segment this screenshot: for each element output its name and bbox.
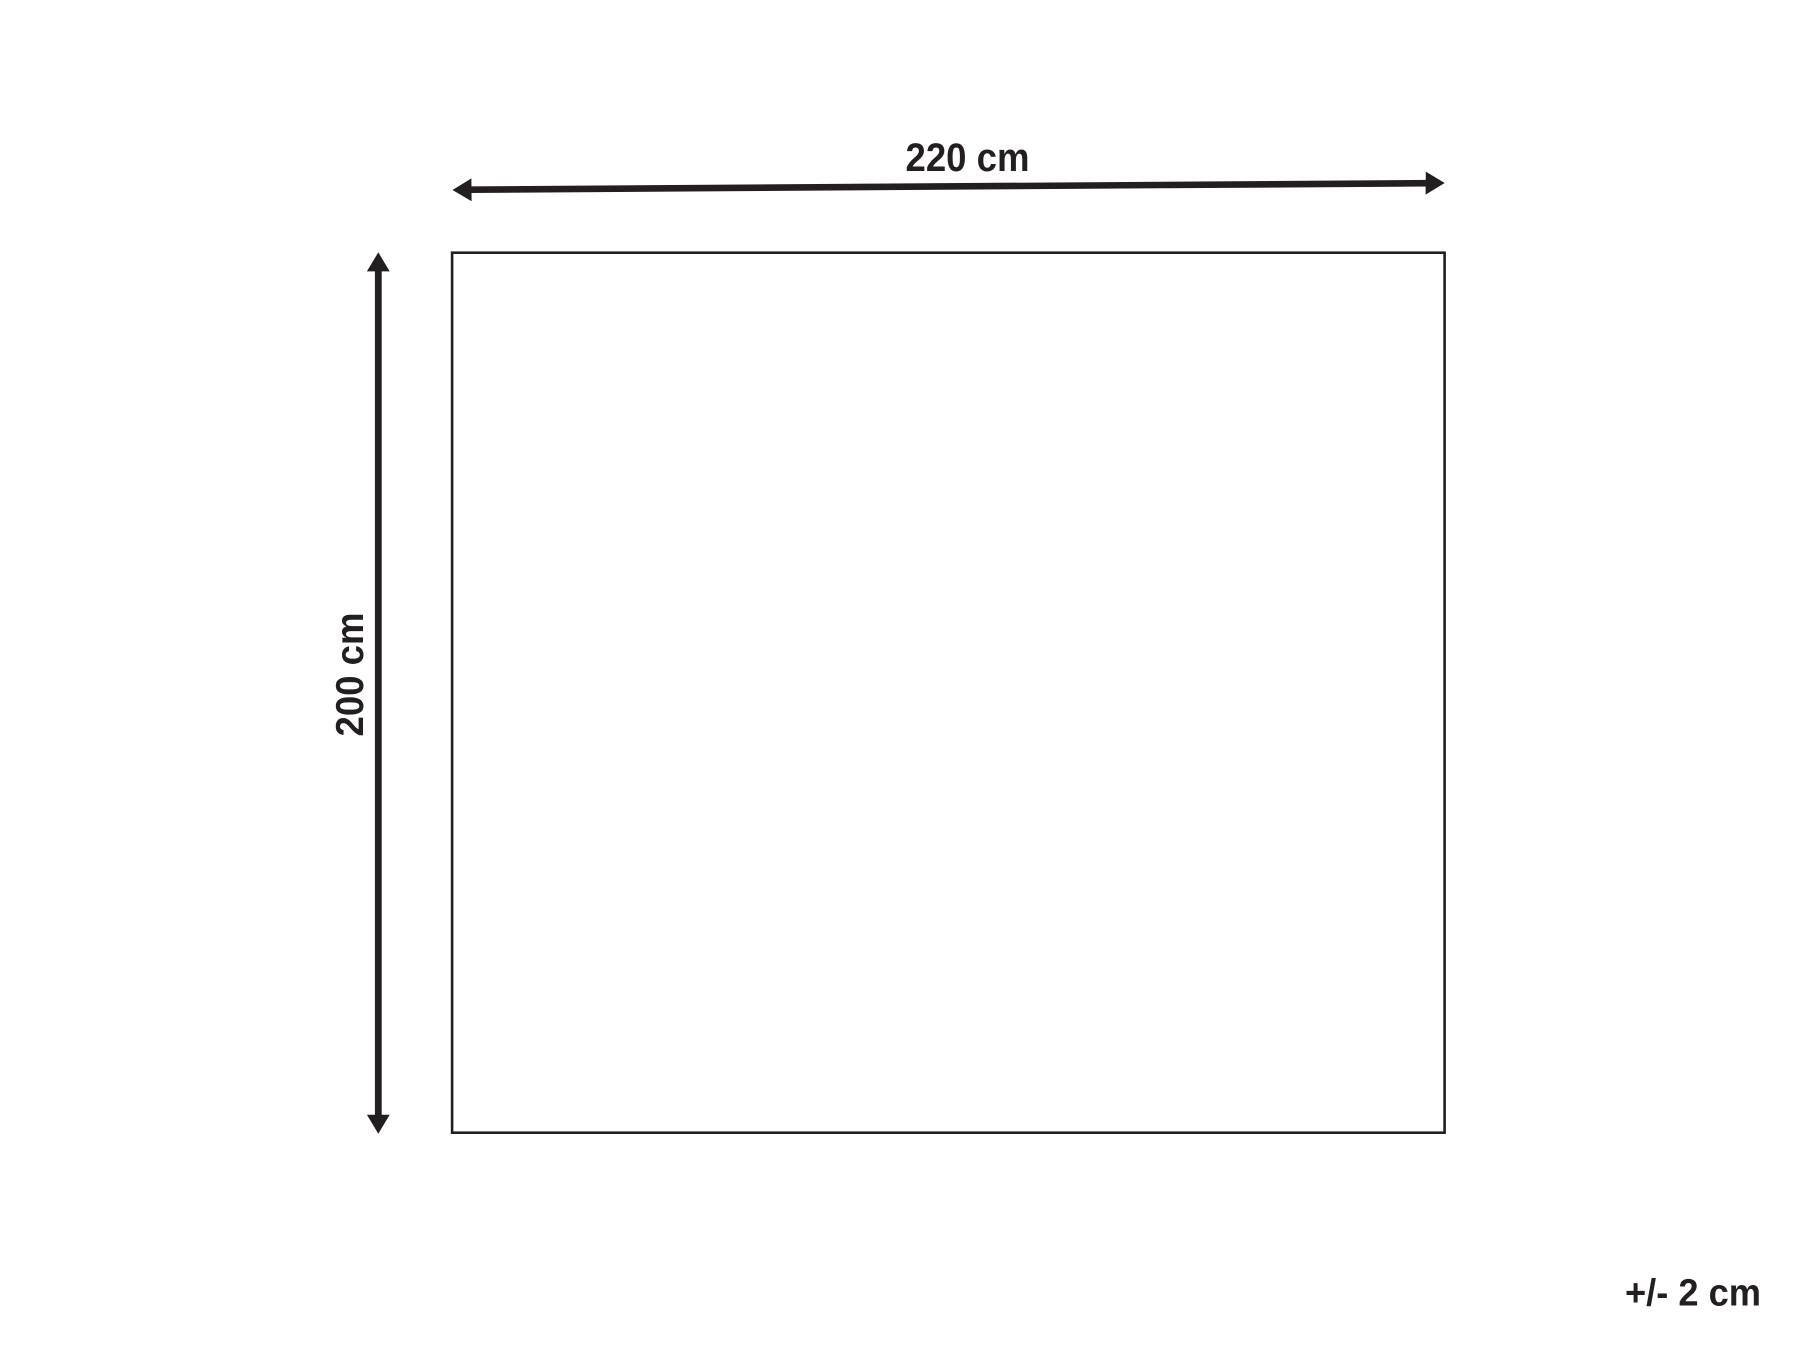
svg-text:+/- 2 cm: +/- 2 cm — [1625, 1273, 1761, 1315]
svg-text:200 cm: 200 cm — [329, 613, 372, 737]
svg-text:220 cm: 220 cm — [906, 136, 1030, 180]
